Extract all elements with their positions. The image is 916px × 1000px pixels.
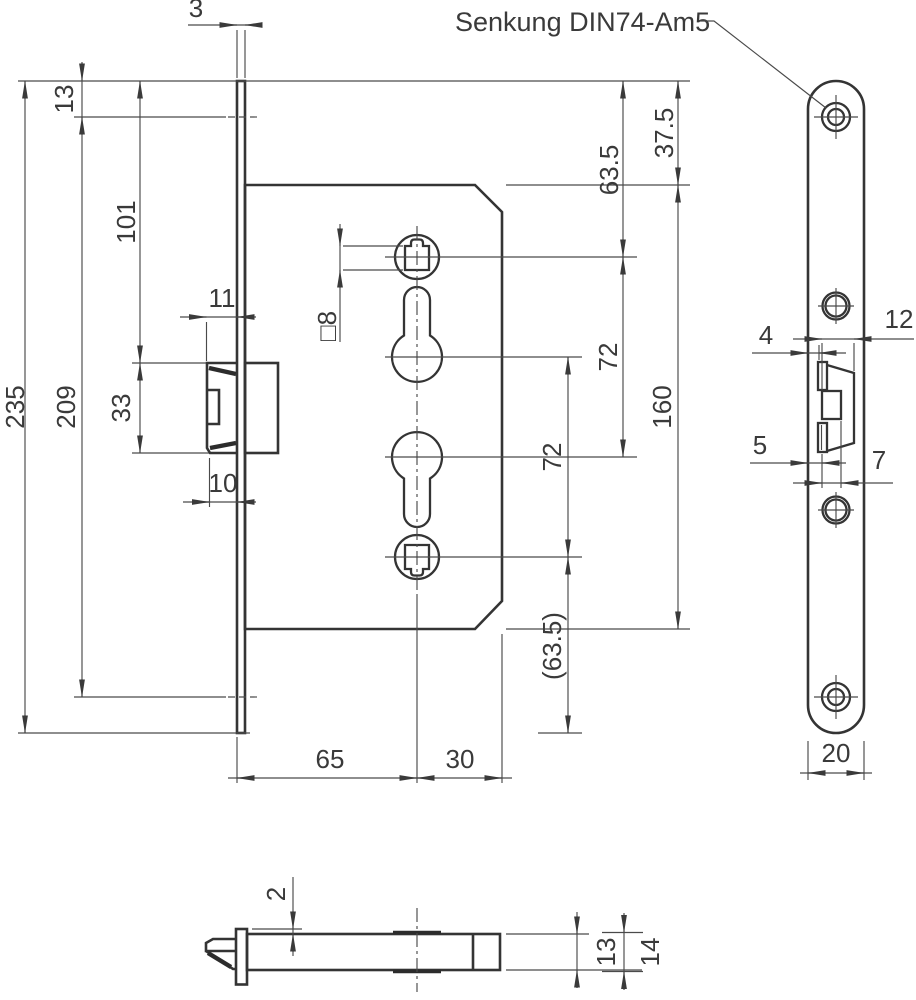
dim-text-30: 30 <box>446 744 475 774</box>
dim-text-209: 209 <box>51 385 81 428</box>
dim-text-13b: 13 <box>591 938 621 967</box>
dim-text-14: 14 <box>635 938 665 967</box>
dim-text-101: 101 <box>111 200 141 243</box>
dim-text-65: 65 <box>316 744 345 774</box>
dim-text-5: 5 <box>753 430 767 460</box>
dim-text-33: 33 <box>106 394 136 423</box>
technical-drawing-page: 3 235 13 209 101 33 <box>0 0 916 1000</box>
mortise-lock-drawing: 3 235 13 209 101 33 <box>0 0 916 1000</box>
dim-text-72a: 72 <box>593 343 623 372</box>
dim-text-160: 160 <box>647 385 677 428</box>
dim-text-10: 10 <box>209 468 238 498</box>
dim-text-12: 12 <box>885 304 914 334</box>
dim-text-11: 11 <box>209 283 236 313</box>
callout-text: Senkung DIN74-Am5 <box>455 7 710 37</box>
dim-text-sq8: □8 <box>312 311 342 341</box>
dim-text-635: 63.5 <box>594 145 624 196</box>
dim-text-7: 7 <box>872 445 886 475</box>
dim-text-375: 37.5 <box>649 108 679 159</box>
background <box>0 0 916 1000</box>
dim-text-635p: (63.5) <box>537 612 567 680</box>
dim-text-20: 20 <box>822 738 851 768</box>
dim-text-4: 4 <box>759 320 773 350</box>
dim-text-2: 2 <box>261 887 291 901</box>
dim-text-72b: 72 <box>537 443 567 472</box>
dim-text-13: 13 <box>49 85 79 114</box>
dim-text-3: 3 <box>189 0 203 23</box>
dim-text-235: 235 <box>0 385 30 428</box>
